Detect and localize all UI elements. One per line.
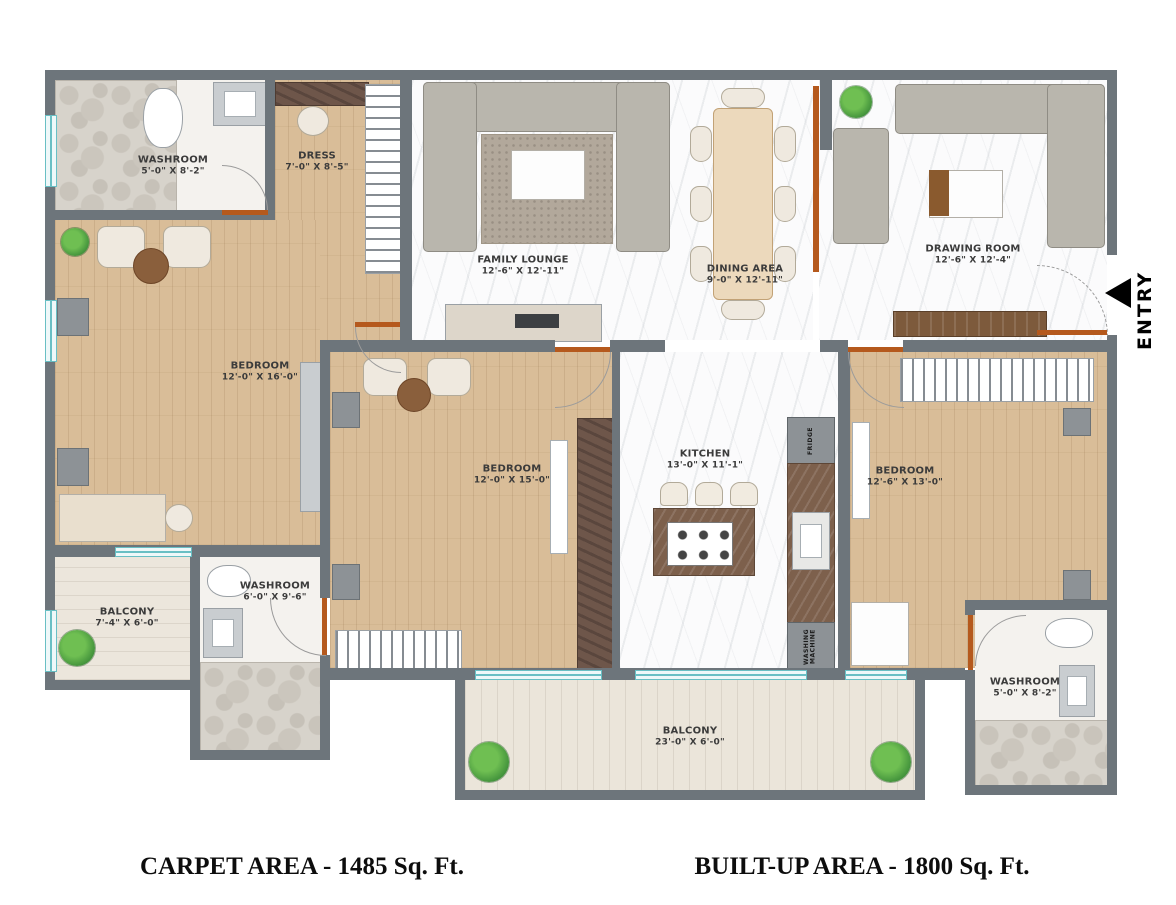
dressing-table: [275, 82, 369, 106]
nightstand: [1063, 408, 1091, 436]
armchair: [427, 358, 471, 396]
room-label-kitchen: KITCHEN13'-0" X 11'-1": [667, 448, 743, 473]
wall: [1107, 70, 1117, 795]
room-dims: 7'-4" X 6'-0": [95, 619, 158, 631]
wall: [45, 70, 1117, 80]
room-name: DRESS: [298, 151, 336, 162]
room-dims: 12'-0" X 15'-0": [474, 476, 550, 488]
room-label-drawing: DRAWING ROOM12'-6" X 12'-4": [925, 243, 1020, 268]
door-leaf: [555, 347, 610, 352]
round-table: [133, 248, 169, 284]
armchair: [163, 226, 211, 268]
room-label-bedroom3: BEDROOM12'-6" X 13'-0": [867, 465, 943, 490]
wall: [965, 785, 1117, 795]
floor-plan: FRIDGE WASHING MACHINE: [45, 70, 1117, 800]
plant: [59, 630, 95, 666]
nightstand: [57, 448, 89, 486]
round-table: [397, 378, 431, 412]
plant: [469, 742, 509, 782]
wall: [45, 680, 200, 690]
wall: [320, 655, 330, 760]
toilet: [1045, 618, 1093, 648]
nightstand: [332, 564, 360, 600]
room-name: FAMILY LOUNGE: [477, 255, 568, 266]
window: [45, 610, 57, 672]
sink-basin: [800, 524, 822, 558]
wall: [838, 352, 850, 668]
door-leaf: [355, 322, 400, 327]
room-name: DRAWING ROOM: [925, 244, 1020, 255]
room-name: DINING AREA: [707, 264, 783, 275]
study-desk: [851, 602, 909, 666]
room-label-dress: DRESS7'-0" X 8'-5": [285, 150, 348, 175]
wall: [820, 340, 848, 352]
dining-drawing-divider: [813, 86, 819, 272]
room-label-washroom-br: WASHROOM5'-0" X 8'-2": [990, 676, 1060, 701]
room-dims: 12'-6" X 12'-4": [925, 256, 1020, 268]
nightstand: [332, 392, 360, 428]
dressing-table: [59, 494, 166, 542]
drawing-sideboard: [893, 311, 1047, 337]
fridge-label: FRIDGE: [808, 427, 815, 455]
drawing-sofa-left: [833, 128, 889, 244]
washroom-br-shower-floor: [975, 720, 1109, 787]
room-label-bedroom1: BEDROOM12'-0" X 16'-0": [222, 360, 298, 385]
room-dims: 9'-0" X 12'-11": [707, 276, 783, 288]
toilet: [143, 88, 183, 148]
lounge-sofa-left: [423, 82, 477, 252]
lounge-sofa-right: [616, 82, 670, 252]
sliding-window: [475, 670, 602, 680]
room-name: BEDROOM: [231, 361, 290, 372]
sliding-window: [115, 547, 192, 557]
fridge: FRIDGE: [787, 417, 835, 465]
dress-wardrobe: [365, 84, 402, 274]
room-label-family-lounge: FAMILY LOUNGE12'-6" X 12'-11": [477, 254, 568, 279]
washroom-mid-shower-floor: [200, 662, 327, 752]
nightstand: [1063, 570, 1091, 600]
bedroom2-closet: [335, 630, 462, 670]
door-leaf: [222, 210, 268, 215]
kitchen-sink: [792, 512, 830, 570]
room-label-washroom-mid: WASHROOM6'-0" X 9'-6": [240, 580, 310, 605]
wall: [330, 668, 465, 680]
wall-console: [300, 362, 322, 512]
window: [45, 300, 57, 362]
room-name: KITCHEN: [680, 449, 731, 460]
plant: [61, 228, 89, 256]
room-dims: 6'-0" X 9'-6": [240, 593, 310, 605]
dining-chair: [690, 126, 712, 162]
wall: [965, 600, 975, 615]
stove: [667, 522, 733, 566]
dining-chair: [774, 186, 796, 222]
lounge-coffee-table: [511, 150, 585, 200]
builtup-area-label: BUILT-UP AREA - 1800 Sq. Ft.: [694, 853, 1029, 881]
wall: [400, 80, 412, 342]
sink: [1059, 665, 1095, 717]
room-label-washroom-tl: WASHROOM5'-0" X 8'-2": [138, 154, 208, 179]
wall: [915, 668, 925, 800]
room-dims: 7'-0" X 8'-5": [285, 163, 348, 175]
room-label-balcony-left: BALCONY7'-4" X 6'-0": [95, 606, 158, 631]
drawing-sofa-right: [1047, 84, 1105, 248]
dining-chair: [690, 186, 712, 222]
room-label-dining: DINING AREA9'-0" X 12'-11": [707, 263, 783, 288]
plant: [871, 742, 911, 782]
wall: [965, 670, 975, 795]
room-dims: 12'-0" X 16'-0": [222, 373, 298, 385]
entry-label: ENTRY: [1136, 245, 1155, 350]
dressing-stool: [165, 504, 193, 532]
wall: [320, 340, 555, 352]
wall: [612, 352, 620, 668]
sink: [203, 608, 243, 658]
bedroom2-wardrobe: [577, 418, 614, 672]
sink-basin: [1067, 676, 1087, 706]
bar-stool: [695, 482, 723, 506]
sink: [213, 82, 267, 126]
dressing-stool: [297, 106, 329, 136]
dining-chair: [774, 126, 796, 162]
door-leaf: [848, 347, 903, 352]
room-name: BEDROOM: [483, 464, 542, 475]
entry-door-leaf: [1037, 330, 1107, 335]
entry-arrow-icon: [1105, 278, 1131, 308]
wall: [610, 340, 665, 352]
room-dims: 13'-0" X 11'-1": [667, 461, 743, 473]
sliding-window: [635, 670, 807, 680]
floor-plan-page: FRIDGE WASHING MACHINE: [0, 0, 1176, 905]
wall-stub: [820, 80, 832, 150]
plant: [840, 86, 872, 118]
door-leaf: [322, 598, 327, 655]
room-dims: 12'-6" X 13'-0": [867, 478, 943, 490]
room-name: BALCONY: [663, 726, 718, 737]
sink-basin: [224, 91, 255, 116]
carpet-area-label: CARPET AREA - 1485 Sq. Ft.: [140, 853, 464, 881]
window: [45, 115, 57, 187]
bar-stool: [660, 482, 688, 506]
wall: [455, 668, 465, 800]
wall: [455, 790, 925, 800]
room-dims: 12'-6" X 12'-11": [477, 267, 568, 279]
room-dims: 5'-0" X 8'-2": [990, 689, 1060, 701]
dining-chair: [721, 88, 765, 108]
bar-stool: [730, 482, 758, 506]
drawing-table-runner: [929, 170, 949, 216]
room-name: BEDROOM: [876, 466, 935, 477]
room-name: BALCONY: [100, 607, 155, 618]
room-name: WASHROOM: [138, 155, 208, 166]
sink-basin: [212, 619, 235, 648]
room-name: WASHROOM: [990, 677, 1060, 688]
washing-machine: WASHING MACHINE: [787, 622, 835, 672]
wall: [965, 600, 1107, 610]
washing-machine-label: WASHING MACHINE: [804, 629, 817, 665]
room-label-bedroom2: BEDROOM12'-0" X 15'-0": [474, 463, 550, 488]
tv-panel: [550, 440, 568, 554]
dining-chair: [721, 300, 765, 320]
bedroom3-wardrobe: [900, 358, 1094, 402]
wall: [320, 352, 330, 598]
wall: [190, 545, 200, 760]
nightstand: [57, 298, 89, 336]
room-dims: 5'-0" X 8'-2": [138, 167, 208, 179]
wall: [190, 750, 330, 760]
room-label-balcony-bottom: BALCONY23'-0" X 6'-0": [655, 725, 725, 750]
room-dims: 23'-0" X 6'-0": [655, 738, 725, 750]
door-leaf: [968, 615, 973, 670]
wall: [903, 340, 1107, 352]
lounge-tv: [515, 314, 559, 328]
sliding-window: [845, 670, 907, 680]
room-name: WASHROOM: [240, 581, 310, 592]
